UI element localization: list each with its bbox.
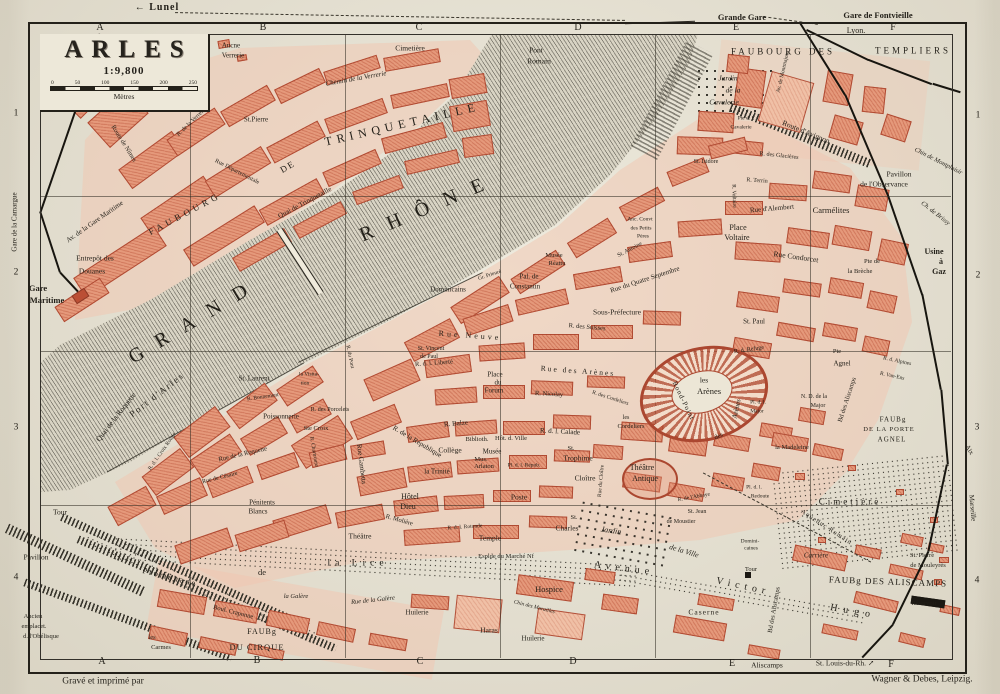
- grid-row-4-right: 4: [975, 576, 980, 586]
- grid-row-2-right: 2: [976, 271, 981, 281]
- poi-sous-prefecture: Sous-Préfecture: [593, 308, 641, 316]
- poi-st-laurent: St. Laurent: [238, 376, 269, 383]
- poi-hotel-dieu-2: Dieu: [400, 503, 416, 511]
- street-r-refuge: R. d. Refuge: [734, 345, 765, 355]
- district-porte-agnel-3: AGNEL: [878, 437, 907, 444]
- poi-hospice: Hospice: [535, 585, 563, 594]
- street-route-nimes: Route de Nîmes: [109, 125, 137, 164]
- poi-la-visitation-1: la Visita-: [299, 372, 319, 378]
- poi-pal-constantin-1: Pal. de: [519, 274, 538, 281]
- river-name-rhone: RHÔNE: [357, 169, 502, 246]
- poi-pl-redoute-2: Redoute: [751, 494, 769, 500]
- street-av-gare-maritime: Av. de la Gare Maritime: [65, 200, 124, 245]
- credit-right: Wagner & Debes, Leipzig.: [871, 675, 972, 685]
- poi-pte-cavalerie-1: Pte d. l.: [738, 116, 755, 122]
- grid-col-c-top: C: [416, 23, 423, 33]
- street-victor: Victor: [715, 576, 771, 597]
- street-rue-roquette: Rue de la Roquette: [218, 446, 268, 464]
- poi-st-jean-moustier-2: de Moustier: [667, 519, 696, 525]
- poi-couvent-petits-peres-2: des Petits: [631, 226, 652, 232]
- poi-st-trophime-2: Trophime: [563, 454, 592, 462]
- street-rue-galere: Rue de la Galère: [351, 595, 395, 606]
- street-ch-brissy: Ch. de Brissy: [919, 201, 950, 228]
- poi-ancne-verrerie-1: Ancne: [222, 43, 240, 50]
- poi-usine-gaz-2: à: [939, 258, 943, 266]
- street-chemin-murailles: Chin des Murailles: [513, 600, 555, 616]
- poi-jardin-ville-2: de la Ville: [668, 543, 699, 559]
- district-de: DE: [279, 159, 297, 175]
- poi-gr-prieure: Gr. Prieuré: [478, 270, 503, 283]
- street-route-avignon: Route d'Avignon: [781, 119, 831, 145]
- poi-st-pierre-trinquetaille: St.Pierre: [244, 117, 268, 124]
- street-rue-alembert: Rue d'Alembert: [750, 204, 795, 215]
- poi-nd-major-1: N. D. de la: [801, 394, 827, 400]
- poi-st-vincent-1: St. Vincent: [418, 346, 445, 352]
- street-rue-gambetta: Rue Gambetta: [355, 444, 367, 485]
- street-la-lice: la Lice: [327, 559, 388, 569]
- district-trinquetaille: TRINQUETAILLE: [323, 100, 480, 147]
- street-r-suisses: R. des Suisses: [568, 323, 605, 333]
- street-r-alpines: R. d. Alpines: [882, 356, 911, 367]
- poi-obelisque-1: Ancien: [24, 614, 43, 621]
- street-rue-condorcet: Rue Condorcet: [773, 250, 819, 264]
- scale-bar: [50, 86, 198, 91]
- poi-usine-gaz-1: Usine: [924, 248, 943, 256]
- poi-jardin-cavalerie-1: Jardin: [718, 74, 737, 82]
- route-label-grande-gare: Grande Gare: [718, 13, 766, 22]
- poi-penitents-blancs-1: Pénitents: [249, 500, 275, 507]
- edge-label-gare-camargue: Gare de la Camargue: [12, 192, 19, 251]
- poi-hotel-dieu-1: Hôtel: [401, 493, 419, 501]
- poi-pavillon-ouest: Pavillon: [23, 553, 48, 561]
- poi-couvent-petits-peres-3: Pères: [637, 234, 649, 240]
- poi-pl-redoute-1: Pl. d. l.: [746, 485, 762, 491]
- street-r-croix-rouge: R. d. l. Croix Rouge: [148, 432, 178, 472]
- poi-jardin-cavalerie-2: de la: [726, 86, 741, 94]
- poi-pte-breche-2: la Brèche: [848, 269, 873, 276]
- poi-gare-maritime-2: Maritime: [30, 296, 64, 305]
- poi-les-carmes-2: Carmes: [151, 645, 171, 652]
- district-faub-cirque-1: FAUBg: [247, 628, 277, 636]
- grid-col-e-top: E: [733, 23, 739, 33]
- street-rond-point-arenes: Arènes: [732, 399, 743, 420]
- poi-la-visitation-2: tion: [301, 381, 310, 387]
- route-label-gare-fontvieille: Gare de Fontvieille: [843, 11, 912, 20]
- street-r-liberte: R. d. l. Liberté: [415, 359, 453, 368]
- poi-musee: Musée: [483, 449, 502, 456]
- poi-la-madeleine: la Madeleine: [775, 445, 809, 452]
- credit-left: Gravé et imprimé par: [62, 677, 144, 687]
- street-r-nicolay: R. Nicolay: [535, 391, 563, 399]
- poi-st-trophime-1: St.: [567, 446, 574, 453]
- poi-pte-cavalerie-2: Cavalerie: [730, 125, 751, 131]
- poi-poste: Poste: [511, 493, 527, 501]
- poi-carmelites: Carmélites: [813, 206, 850, 215]
- poi-pte-agnel-1: Pte: [833, 349, 841, 356]
- grid-col-d-top: D: [574, 23, 581, 33]
- poi-haras: Haras: [480, 626, 498, 634]
- street-rond-point-des: des: [714, 432, 725, 442]
- poi-les-arenes-2: Arènes: [697, 387, 721, 396]
- poi-couvent-petits-peres-1: Anc. Couvt: [627, 217, 652, 223]
- poi-theatre: Théâtre: [349, 532, 372, 540]
- grid-col-e-bottom: E: [729, 659, 735, 669]
- poi-entrepot-douanes-2: Douanes: [79, 267, 105, 275]
- map-title: ARLES: [55, 36, 192, 64]
- poi-aqueduc-romain: Aqueduc Romain: [799, 509, 853, 547]
- street-rond-point: Rond-Point: [671, 380, 696, 421]
- poi-place-forum-3: Forum: [485, 388, 504, 395]
- scale-bar-unit: Mètres: [114, 92, 135, 101]
- poi-place-forum-1: Place: [487, 372, 502, 379]
- street-rue-quatre-septembre: Rue du Quatre Septembre: [609, 265, 680, 294]
- street-r-voltaire: R. Voltaire: [730, 184, 736, 208]
- street-r-republique: R. de la République: [391, 425, 442, 460]
- street-rue-neuve: Rue Neuve: [438, 330, 501, 342]
- poi-obelisque-2: emplacet.: [21, 624, 46, 631]
- street-rue-arenes: Rue des Arènes: [541, 365, 616, 378]
- grid-row-1-left: 1: [14, 109, 19, 119]
- poi-place-forum-2: du: [495, 380, 502, 387]
- poi-temple: Temple: [479, 534, 501, 542]
- map-sheet: { "page": { "title_block": { "title": "A…: [0, 0, 1000, 694]
- poi-dominicaines-1: Domini-: [741, 539, 760, 545]
- poi-nd-major-2: Major: [811, 403, 826, 409]
- grid-col-b-bottom: B: [254, 656, 261, 666]
- poi-dominicaines-2: caines: [744, 546, 758, 552]
- poi-reservoir: Réservoir: [911, 601, 936, 608]
- poi-usine-gaz-3: Gaz: [932, 268, 946, 276]
- grid-col-d-bottom: D: [569, 657, 576, 667]
- street-r-du-pont: R. du Pont: [344, 345, 354, 369]
- route-label-lunel: ← Lunel: [135, 3, 180, 13]
- street-hugo: Hugo: [829, 603, 876, 621]
- edge-label-aix: Aix: [963, 444, 975, 457]
- poi-huilerie-2: Huilerie: [522, 636, 545, 643]
- poi-st-pierre-mouleyres-1: St. Pierre: [910, 553, 934, 560]
- grid-col-f-top: F: [890, 23, 896, 33]
- street-boul-craponne: Boul. Craponne: [212, 605, 254, 621]
- poi-pte-agnel-2: Agnel: [833, 361, 850, 368]
- poi-esplanade-marche: Esplde du Marché Nf: [478, 554, 534, 561]
- poi-st-antoine: St. Antoine: [617, 241, 644, 259]
- poi-poissonnerie: Poissonnerie: [263, 414, 299, 421]
- poi-pte-breche-1: Pte de: [864, 259, 880, 266]
- poi-place-voltaire-1: Place: [729, 224, 746, 232]
- street-av-montmajour: Av. de Montmajour: [777, 51, 792, 94]
- street-avenue: Avenue: [593, 560, 654, 577]
- title-box: ARLES 1:9,800 050100150200250 Mètres: [40, 34, 210, 112]
- street-rue-departementale: Rue Départementale: [214, 158, 261, 186]
- poi-tour-sud-est: Tour: [745, 567, 757, 574]
- poi-les-carmes-1: les: [148, 635, 155, 642]
- poi-tour-ouest: Tour: [53, 508, 67, 516]
- grid-col-a-top: A: [96, 23, 103, 33]
- grid-row-1-right: 1: [976, 111, 981, 121]
- poi-carriere: Carrière: [804, 553, 828, 560]
- street-r-abbaye: R. de l'Abbaye: [677, 492, 710, 503]
- route-label-lyon: Lyon.: [847, 27, 865, 35]
- poi-st-isidore: St. Isidore: [694, 159, 719, 165]
- district-templiers: TEMPLIERS: [875, 47, 951, 56]
- route-label-aliscamps: Aliscamps: [751, 661, 783, 669]
- poi-la-galere: la Galère: [284, 594, 309, 601]
- street-r-van-ens: R. Van-Ens: [879, 372, 905, 383]
- route-label-st-louis: St. Louis-du-Rh. ↗: [816, 659, 874, 667]
- street-r-calade: R. d. l. Calade: [540, 427, 580, 436]
- street-promenade-1: Promenade: [142, 566, 199, 588]
- grid-col-c-bottom: C: [417, 657, 424, 667]
- poi-obelisque-3: d. l'Obélisque: [23, 634, 59, 641]
- poi-st-jean-moustier-1: St. Jean: [688, 509, 707, 515]
- poi-pl-major-2: Major: [750, 409, 763, 415]
- poi-pavillon-observance-2: de l'Observance: [860, 180, 908, 188]
- poi-huilerie-1: Huilerie: [406, 610, 429, 617]
- poi-entrepot-douanes-1: Entrepôt des: [76, 254, 114, 262]
- poi-les-arenes-1: les: [700, 376, 708, 384]
- street-r-porcelets: R. des Porcelets: [311, 407, 350, 413]
- poi-pl-major-1: Pl. d. l.: [750, 400, 766, 406]
- poi-gare-maritime-1: Gare: [29, 284, 47, 293]
- street-quai-trinquetaille: Quai de Trinquetaille: [277, 186, 333, 220]
- grid-row-2-left: 2: [14, 268, 19, 278]
- street-r-glacieres: R. des Glacières: [759, 151, 799, 161]
- district-faubourg-trinquetaille: FAUBOURG: [147, 191, 223, 237]
- poi-hotel-de-ville: Hôt. d. Ville: [495, 436, 527, 443]
- grid-col-f-bottom: F: [888, 660, 894, 670]
- poi-jardin-ville-1: Jardin: [600, 526, 622, 537]
- street-r-bonnement: R. Bonnement: [247, 393, 279, 403]
- street-r-rotonde: R. d. l. Rotonde: [447, 524, 482, 532]
- district-faub-aliscamps: FAUBg DES ALISCAMPS: [829, 575, 948, 588]
- district-porte-agnel-1: FAUBg: [880, 417, 907, 424]
- poi-ancne-verrerie-2: Verrerie: [222, 53, 245, 60]
- street-r-cordeliers: R. des Cordeliers: [591, 391, 629, 408]
- poi-caserne: Caserne: [688, 608, 719, 616]
- poi-st-paul: St. Paul: [743, 319, 765, 326]
- poi-penitents-blancs-2: Blancs: [248, 509, 267, 516]
- street-bd-aliscamps-sud: Bd des Aliscamps: [768, 586, 782, 633]
- poi-dominicains: Dominicains: [430, 287, 466, 294]
- grid-row-3-left: 3: [14, 423, 19, 433]
- poi-pal-constantin-2: Constantin: [510, 284, 540, 291]
- street-rue-cloitre: Rue du Cloître: [598, 465, 606, 498]
- poi-la-trinite: la Trinité: [424, 469, 449, 476]
- grid-row-4-left: 4: [14, 573, 19, 583]
- poi-cloitre: Cloître: [575, 474, 596, 482]
- poi-bibliotheque: Biblioth.: [466, 437, 489, 444]
- street-r-balze: R. Balze: [444, 419, 469, 428]
- poi-st-charles-2: Charles: [556, 524, 579, 532]
- poi-st-charles-1: St.: [570, 515, 577, 522]
- street-r-terrin: R. Terrin: [746, 177, 768, 184]
- poi-jardin-cavalerie-3: Cavalerie: [709, 98, 739, 106]
- grid-col-b-top: B: [260, 23, 267, 33]
- poi-mus-arlaton-2: Arlaton: [474, 464, 494, 471]
- street-r-chartrouse: R. Chartrouse: [308, 436, 319, 467]
- poi-pont-romain-1: Pont: [529, 46, 543, 54]
- poi-pl-republique: Pl. d. l. Répub.: [508, 463, 541, 469]
- street-bd-aliscamps-nord: Bd des Aliscamps: [838, 377, 859, 423]
- street-chemin-montplaisir: Chin de Montplaisir: [913, 147, 963, 177]
- poi-les-cordeliers-1: les: [623, 415, 630, 421]
- poi-theatre-antique-2: Antique: [632, 475, 658, 483]
- poi-musee-reattu-1: Musée: [545, 253, 562, 260]
- poi-theatre-antique-1: Théâtre: [630, 464, 654, 472]
- grid-row-3-right: 3: [975, 423, 980, 433]
- street-chemin-verrerie: Chemin de la Verrerie: [325, 70, 387, 88]
- poi-cimetiere-trinquetaille: Cimetière: [395, 44, 425, 52]
- street-promenade-2: de: [258, 568, 266, 577]
- poi-les-cordeliers-2: Cordeliers: [617, 424, 644, 431]
- poi-pont-romain-2: Romain: [527, 57, 551, 65]
- grid-col-a-bottom: A: [98, 657, 105, 667]
- poi-cimetiere-est: Cimetière: [819, 498, 882, 507]
- edge-label-marseille: Marseille: [967, 495, 976, 522]
- map-scale-ratio: 1:9,800: [104, 65, 145, 77]
- poi-st-pierre-mouleyres-2: de Mouleyrès: [910, 563, 946, 570]
- district-porte-agnel-2: DE LA PORTE: [863, 427, 914, 434]
- street-r-moliere: R. Molière: [385, 514, 414, 528]
- poi-place-voltaire-2: Voltaire: [724, 234, 749, 242]
- poi-pavillon-observance-1: Pavillon: [886, 170, 911, 178]
- district-faub-cirque-2: DU CIRQUE: [229, 643, 284, 652]
- river-name-grand: GRAND: [125, 273, 265, 368]
- poi-ste-croix: Ste Croix: [304, 426, 329, 433]
- poi-musee-reattu-2: Réattu: [549, 261, 566, 268]
- street-r-cesaire: Rue de Césaire: [202, 471, 239, 486]
